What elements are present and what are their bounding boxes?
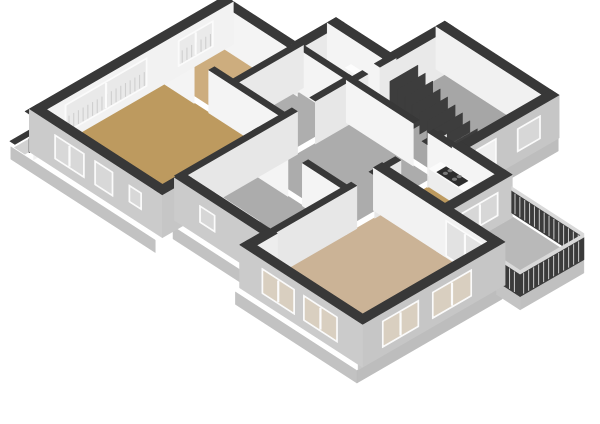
stove-burner	[452, 178, 457, 181]
floorplan-canvas	[0, 0, 600, 424]
stove-burner	[443, 172, 448, 175]
stove-burner	[447, 169, 452, 172]
stove-burner	[457, 175, 462, 178]
floorplan-3d-view	[0, 0, 600, 424]
